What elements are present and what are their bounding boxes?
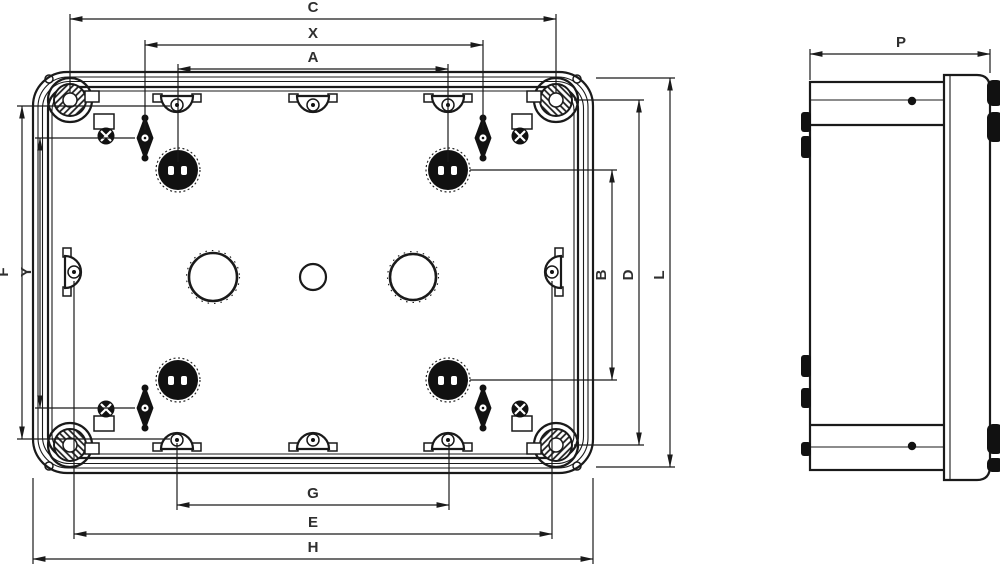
wall-mount-lug <box>987 112 1000 142</box>
dim-label-f: F <box>0 267 12 276</box>
side-lid-screw-bottom-icon <box>908 442 916 450</box>
round-boss-bottom-right <box>426 358 470 402</box>
dimension-p: P <box>810 34 990 80</box>
mount-tab-right <box>545 248 563 296</box>
side-lid-screw-top-icon <box>908 97 916 105</box>
knockout-circle-center <box>300 264 326 290</box>
mount-tab-bottom-center <box>289 433 337 451</box>
wall-mount-lug <box>987 458 1000 472</box>
round-boss-bottom-left <box>156 358 200 402</box>
dim-label-c: C <box>308 0 319 16</box>
side-cover-outline <box>944 75 990 480</box>
enclosure-lid-edge <box>38 77 588 468</box>
mount-tab-bottom-right <box>424 433 472 451</box>
side-view <box>801 75 1000 480</box>
side-body-outline <box>810 82 948 470</box>
enclosure-inner-lip <box>52 91 574 454</box>
dim-label-p: P <box>896 34 906 51</box>
dim-label-d: D <box>620 269 637 280</box>
dim-label-a: A <box>308 49 319 66</box>
wall-mount-lug <box>987 424 1000 454</box>
side-edge-lug <box>801 442 811 456</box>
plan-view <box>33 72 593 473</box>
dim-label-y: Y <box>18 267 35 277</box>
enclosure-dimension-drawing: C X A F Y B D L <box>0 0 1000 569</box>
enclosure-outer-edge <box>33 72 593 473</box>
dimension-b: B <box>470 170 617 380</box>
dim-label-e: E <box>308 514 318 531</box>
wall-mount-lug <box>987 80 1000 106</box>
mount-tab-left <box>63 248 81 296</box>
enclosure-seal-edge <box>43 82 584 464</box>
dim-label-g: G <box>307 485 319 502</box>
enclosure-inner-wall <box>48 87 578 458</box>
dim-label-l: L <box>651 270 668 279</box>
dimension-g: G <box>177 443 449 510</box>
dim-label-x: X <box>308 25 318 42</box>
side-edge-lug <box>801 136 811 158</box>
mount-tab-top-center <box>289 94 337 112</box>
side-edge-lug <box>801 355 811 377</box>
drawing-canvas: C X A F Y B D L <box>0 0 1000 569</box>
mount-tab-top-left <box>153 94 201 112</box>
dim-label-h: H <box>308 539 319 556</box>
side-edge-lug <box>801 388 811 408</box>
knockout-circle-left <box>189 253 237 301</box>
dim-label-b: B <box>593 269 610 280</box>
knockout-circle-right <box>390 254 436 300</box>
spindle-knob-bottom-right <box>475 385 492 432</box>
spindle-knob-bottom-left <box>137 385 154 432</box>
side-edge-lug <box>801 112 811 132</box>
